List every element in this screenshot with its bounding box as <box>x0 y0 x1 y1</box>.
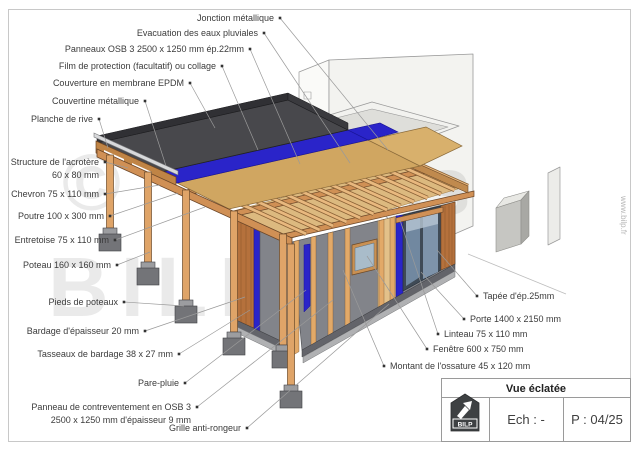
exploded-view-drawing: © Plans BILP www.bilp.fr <box>0 0 640 452</box>
title-block: Vue éclatée Ech : - P : 04/25 BILP <box>442 379 631 442</box>
callout-label: Linteau 75 x 110 mm <box>444 329 527 339</box>
leader-dot <box>279 17 282 20</box>
leader-dot <box>221 65 224 68</box>
logo-text: BILP <box>458 422 473 429</box>
callout-label: Grille anti-rongeur <box>169 423 241 433</box>
callout-label: Montant de l'ossature 45 x 120 mm <box>390 361 530 371</box>
leader-dot <box>144 100 147 103</box>
leader-dot <box>184 382 187 385</box>
callout-label: Planche de rive <box>31 114 93 124</box>
callout-label: Panneaux OSB 3 2500 x 1250 mm ép.22mm <box>65 44 244 54</box>
leader-dot <box>437 333 440 336</box>
callout-label: Poteau 160 x 160 mm <box>23 260 111 270</box>
callout-label: Poutre 100 x 300 mm <box>18 211 104 221</box>
leader-dot <box>109 215 112 218</box>
callout-label: Film de protection (facultatif) ou colla… <box>59 61 216 71</box>
footing-block <box>223 338 245 355</box>
poteau-post <box>231 211 238 332</box>
callout-label: Entretoise 75 x 110 mm <box>15 235 109 245</box>
callout-label: Chevron 75 x 110 mm <box>11 189 99 199</box>
callout-label: Tapée d'ép.25mm <box>483 291 554 301</box>
leader-dot <box>189 82 192 85</box>
callout-label: Structure de l'acrotère <box>11 157 99 167</box>
callout-label: Panneau de contreventement en OSB 3 <box>31 402 191 412</box>
leader-dot <box>178 353 181 356</box>
callout-label: Bardage d'épaisseur 20 mm <box>27 326 139 336</box>
chimney-box-front <box>496 200 521 252</box>
poteau-post <box>288 244 295 385</box>
callout-label: Tasseaux de bardage 38 x 27 mm <box>37 349 173 359</box>
leader-dot <box>98 118 101 121</box>
footing-block <box>280 391 302 408</box>
callout-label: Evacuation des eaux pluviales <box>137 28 259 38</box>
leader-dot <box>196 406 199 409</box>
gable-cladding <box>236 214 254 328</box>
watermark-website: www.bilp.fr <box>619 195 628 235</box>
ground-line <box>468 254 566 294</box>
rain-screen-strip-2 <box>396 215 403 297</box>
poteau-post <box>280 234 287 345</box>
gable-rain-screen <box>254 222 260 331</box>
drawing-title: Vue éclatée <box>506 383 566 395</box>
window-glass <box>355 243 374 271</box>
leader-dot <box>123 301 126 304</box>
wall-stud <box>390 217 395 301</box>
leader-dot <box>476 295 479 298</box>
leader-dot <box>263 32 266 35</box>
callout-label: Pare-pluie <box>138 378 179 388</box>
rain-screen-strip-1 <box>304 244 310 312</box>
leader-dot <box>116 264 119 267</box>
page-number-label: P : 04/25 <box>571 412 623 427</box>
leader-dot <box>114 239 117 242</box>
leader-dot <box>249 48 252 51</box>
leader-dot <box>104 161 107 164</box>
callout-label: Couverture en membrane EPDM <box>53 78 184 88</box>
callout-label: Pieds de poteaux <box>48 297 118 307</box>
scale-label: Ech : - <box>507 412 545 427</box>
wall-stud <box>311 236 316 345</box>
plan-page: © Plans BILP www.bilp.fr <box>0 0 640 452</box>
leader-dot <box>144 330 147 333</box>
wall-stud <box>328 232 333 335</box>
callout-label: Porte 1400 x 2150 mm <box>470 314 561 324</box>
callout-label: 60 x 80 mm <box>52 170 99 180</box>
leader-dot <box>383 365 386 368</box>
callout-label: Jonction métallique <box>197 13 274 23</box>
leader-dot <box>104 193 107 196</box>
wall-stud <box>379 219 384 306</box>
chimney-box-side <box>521 191 529 244</box>
leader-line <box>115 207 205 240</box>
poteau-post <box>145 172 152 262</box>
leader-dot <box>426 348 429 351</box>
callout-label: Couvertine métallique <box>52 96 139 106</box>
leaning-panel <box>548 167 560 245</box>
leader-dot <box>463 318 466 321</box>
leader-dot <box>246 427 249 430</box>
footing-block <box>137 268 159 285</box>
poteau-post <box>183 190 190 300</box>
callout-label: Fenêtre 600 x 750 mm <box>433 344 524 354</box>
